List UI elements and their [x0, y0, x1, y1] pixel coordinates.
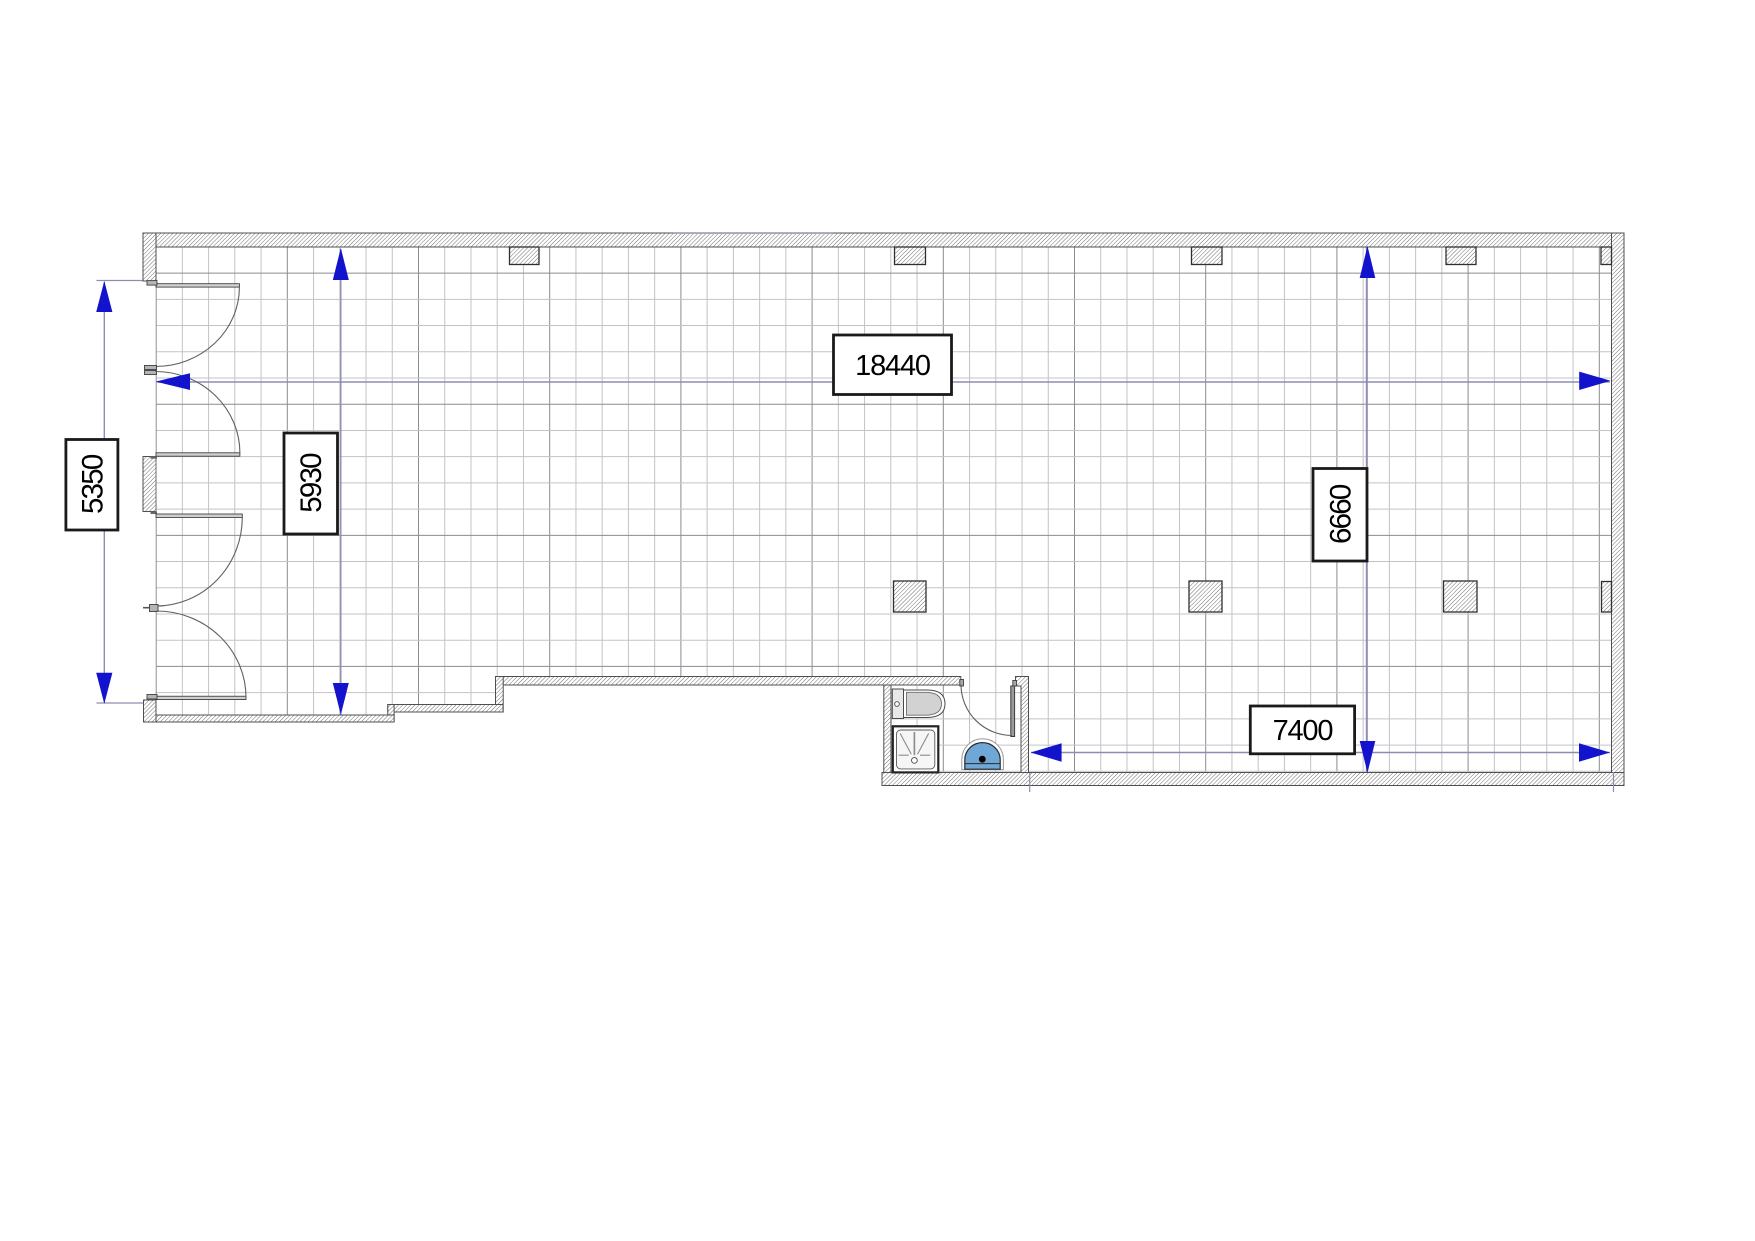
svg-text:5930: 5930: [295, 453, 328, 513]
svg-text:18440: 18440: [855, 350, 930, 382]
svg-text:5350: 5350: [76, 454, 109, 514]
svg-text:7400: 7400: [1273, 715, 1333, 747]
svg-text:6660: 6660: [1324, 484, 1357, 544]
